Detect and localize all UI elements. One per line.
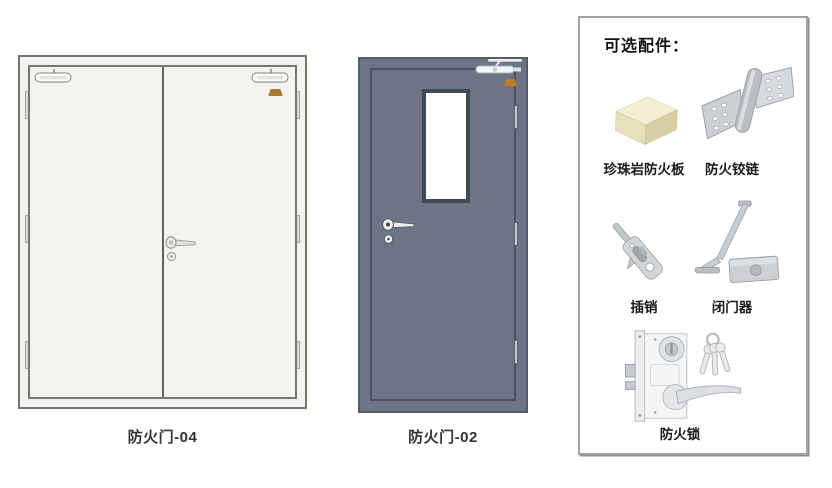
- lever-handle-icon: [164, 234, 202, 268]
- hinge-icon: [514, 222, 518, 246]
- flush-bolt-icon: [604, 210, 688, 292]
- accessories-panel: 可选配件： 珍珠岩防火板 防火铰链: [578, 16, 808, 455]
- double-door-leaves: [28, 65, 297, 399]
- catalog-page: 防火门-04 防火门-02 可选配件：: [0, 0, 832, 488]
- fire-lock-icon: [620, 328, 748, 424]
- lever-handle-icon: [381, 216, 419, 250]
- accessory-label: 防火锁: [600, 423, 760, 443]
- panel-title: 可选配件：: [604, 32, 689, 56]
- accessory-label: 闭门器: [680, 296, 784, 316]
- door-label: 防火门-04: [18, 426, 307, 447]
- fire-hinge-icon: [698, 58, 794, 154]
- perlite-board-icon: [608, 90, 682, 148]
- accessory-label: 防火铰链: [680, 158, 784, 178]
- hinge-icon: [514, 105, 518, 129]
- door-closer-icon: [251, 69, 291, 84]
- brand-logo-icon: [268, 89, 283, 96]
- door-closer-icon: [34, 69, 74, 84]
- hinge-icon: [514, 340, 518, 364]
- leaf-divider: [162, 67, 164, 397]
- single-door-frame: [358, 57, 528, 413]
- double-door-frame: [18, 55, 307, 409]
- door-closer-icon: [474, 58, 524, 78]
- door-label: 防火门-02: [358, 426, 528, 447]
- vision-panel-window: [422, 89, 470, 203]
- door-closer-icon: [690, 198, 780, 292]
